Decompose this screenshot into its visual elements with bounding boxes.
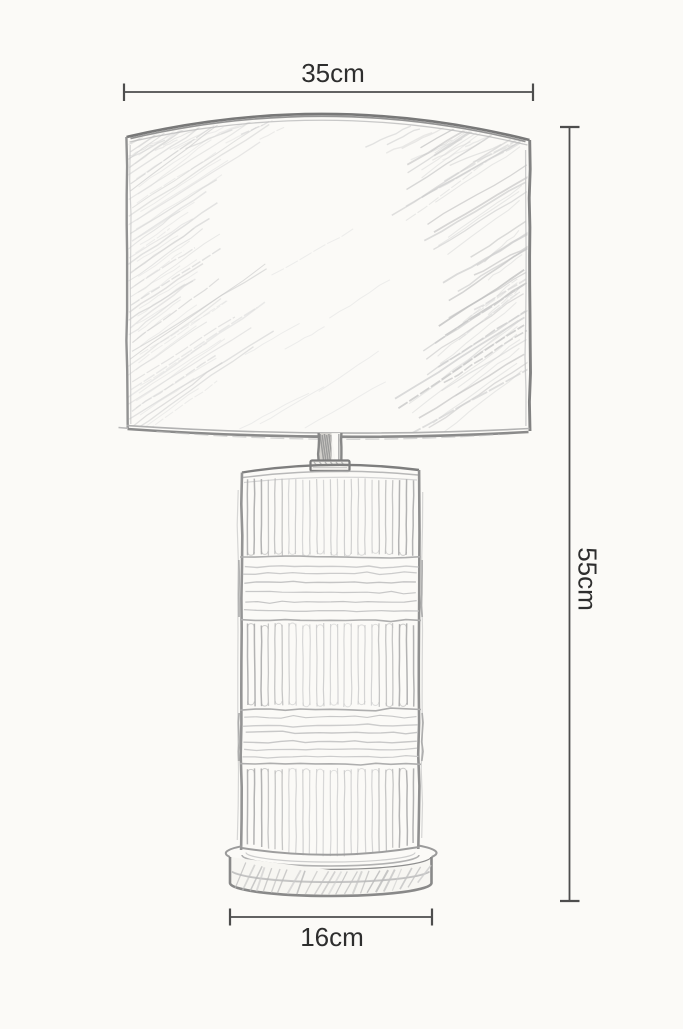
svg-text:55cm: 55cm — [573, 547, 603, 611]
svg-text:35cm: 35cm — [301, 58, 365, 88]
svg-text:16cm: 16cm — [300, 922, 364, 952]
